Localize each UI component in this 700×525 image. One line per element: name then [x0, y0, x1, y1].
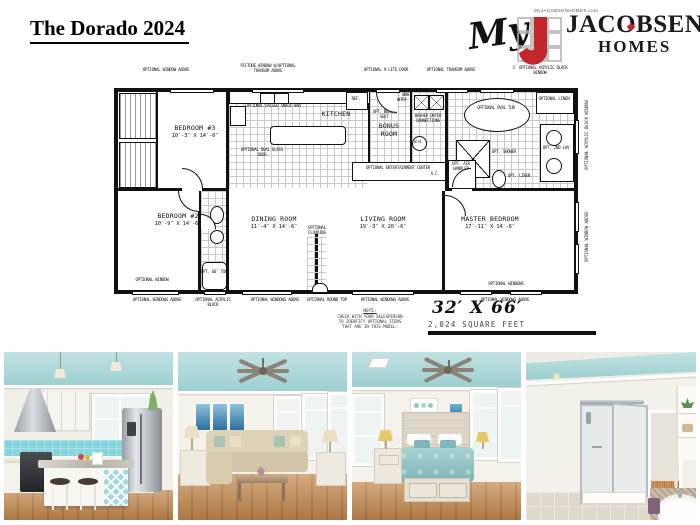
art-shell: [428, 403, 433, 408]
bed3-door-arc: [182, 168, 203, 189]
window-mullion: [331, 407, 347, 409]
duvet: [396, 448, 474, 482]
plan-dimensions: 32′ X 66′: [432, 298, 522, 318]
window-mullion: [305, 409, 327, 411]
bedroom3-dims: 10′-3″ X 14′-6″: [160, 133, 230, 140]
master-windows-label: OPTIONAL WINDOWS: [480, 282, 532, 287]
annotation-acrylic-window: 3′ OPTIONAL ACRYLIC BLOCK WINDOW: [508, 66, 572, 76]
round-top-window: [312, 283, 328, 292]
basket-on-shelf: [682, 424, 693, 432]
master-dims: 17′-11″ X 14′-6″: [442, 224, 538, 231]
art-shell: [414, 403, 419, 408]
bottom-label-1: OPTIONAL WINDOWS ABOVE: [126, 298, 188, 303]
tub-faucet: [678, 490, 682, 498]
ocean-art-panel: [196, 404, 210, 430]
crown-molding: [4, 385, 173, 388]
logo-homes-text: HOMES: [566, 38, 700, 55]
window-transom: [436, 89, 468, 93]
oval-tub: [464, 98, 530, 132]
island-granite-top: [38, 460, 134, 468]
throw-pillow: [274, 436, 285, 447]
toilet-master: [492, 170, 506, 188]
jacobsen-homes-logo: MyJACOBSENHOMES.com My JACOBSEN HOMES: [468, 8, 688, 66]
plant-on-shelf: [681, 398, 694, 408]
stool-leg: [80, 484, 82, 510]
range: [230, 106, 246, 126]
ceiling: [4, 352, 173, 386]
window-master-1: [460, 291, 492, 295]
throw-pillow: [214, 436, 225, 447]
window-mullion: [277, 411, 299, 413]
refrigerator: [122, 408, 162, 492]
master-door-arc: [445, 195, 466, 216]
ocean-art-panel: [213, 404, 227, 430]
coffee-table-top: [236, 476, 288, 483]
stool-leg: [52, 484, 54, 510]
annotation-9lite-door: OPTIONAL 9-LITE DOOR: [360, 68, 412, 73]
window-bed2: [132, 291, 179, 295]
throw-pillow: [230, 436, 241, 447]
nightstand: [374, 448, 402, 484]
fridge-dispenser: [127, 422, 136, 436]
bottom-label-2: OPTIONAL ACRYLIC BLOCK: [190, 298, 236, 308]
door-9lite-gap: [376, 89, 400, 93]
window-mullion: [355, 411, 381, 413]
window-mullion: [355, 435, 381, 437]
annotation-top-window: OPTIONAL WINDOW ABOVE: [136, 68, 196, 73]
bottom-label-5: OPTIONAL WINDOWS ABOVE: [354, 298, 416, 303]
window-dining: [242, 291, 292, 295]
bed3-wardrobe: [119, 93, 157, 139]
window-picture: [252, 89, 304, 93]
note-line: THAT ARE IN THIS MODEL.: [305, 324, 435, 329]
lav-label: OPT. 2ND LAV: [540, 146, 572, 151]
lav-1: [546, 130, 562, 146]
coffee-table-leg: [282, 483, 285, 501]
window-acrylic-bath1: [204, 291, 226, 295]
bed2-window-label: OPTIONAL WINDOW: [130, 278, 174, 283]
bed2-door-arc: [178, 191, 199, 212]
window-master-2: [510, 291, 542, 295]
window-mullion: [501, 405, 521, 407]
dryer-box: [429, 95, 444, 110]
annotation-picture-window: PICTURE WINDOW W/OPTIONAL TRANSOM ABOVE: [238, 64, 298, 74]
right-label-acrylic: OPTIONAL ACRYLIC BLOCK WINDOW: [584, 100, 589, 170]
soaking-tub: [658, 494, 696, 520]
table-lamp-body: [329, 442, 331, 452]
bed3-wardrobe-2: [119, 142, 157, 188]
ac-label: A.C.: [426, 172, 444, 177]
lamp-body: [385, 441, 387, 449]
living-label: LIVING ROOM: [342, 215, 424, 223]
refrigerator-label: REF.: [346, 97, 366, 102]
right-label-window: OPTIONAL WINDOW ABOVE: [584, 211, 589, 262]
throw-pillow: [290, 436, 301, 447]
shower-glass-panel: [580, 404, 614, 504]
kitchen-island: [270, 126, 346, 145]
stool-leg: [94, 484, 96, 510]
fruit-yellow: [85, 455, 90, 460]
entertainment-label: OPTIONAL ENTERTAINMENT CENTER: [354, 166, 442, 171]
island-sign-card: [92, 452, 103, 465]
bonus-room-label: BONUS ROOM: [370, 122, 408, 138]
plan-note: NOTE: CHECK WITH YOUR SALESPERSON TO IDE…: [305, 309, 435, 330]
page-title: The Dorado 2024: [30, 16, 189, 44]
shower-head: [586, 412, 591, 424]
dining-label: DINING ROOM: [236, 215, 312, 223]
lav-bath1: [210, 230, 224, 244]
window-bed3: [170, 89, 214, 93]
photo-kitchen: [4, 352, 173, 520]
shower-handle: [592, 446, 602, 448]
bottom-label-4: OPTIONAL ROUND TOP: [304, 298, 350, 303]
optional-flooring-strip: [307, 237, 326, 290]
shelf: [678, 410, 696, 413]
purple-towel: [648, 498, 660, 514]
opt-linen-label: OPT. LINEN: [506, 174, 532, 179]
ocean-art-panel: [230, 404, 244, 430]
window-master-right-1: [575, 202, 579, 232]
drawer: [439, 483, 467, 498]
pendant-cord: [60, 352, 61, 369]
wall-left: [114, 88, 118, 294]
pendant-cord: [116, 352, 117, 362]
washer-box: [414, 95, 429, 110]
flooring-label: OPTIONAL FLOORING: [300, 226, 334, 236]
table-lamp-body: [191, 438, 193, 450]
window: [498, 388, 521, 462]
coffee-table-leg: [238, 483, 241, 501]
shower-curb: [582, 492, 646, 504]
window-living: [352, 291, 414, 295]
oval-tub-label: OPTIONAL OVAL TUB: [476, 106, 516, 111]
tub-60-label: OPT. 60″ TUB: [200, 270, 228, 275]
snack-bar-label: OPTIONAL RAISED SNACK BAR: [242, 104, 304, 109]
window-mullion: [473, 407, 497, 409]
recessed-light: [554, 374, 559, 379]
washer-dryer-label: WASHER DRYER CONNECTIONS: [412, 114, 444, 124]
living-dims: 19′-3″ X 20′-6″: [342, 224, 424, 231]
floor-plan: OPTIONAL WINDOW ABOVE PICTURE WINDOW W/O…: [112, 62, 598, 314]
water-heater-label: W.H.: [412, 140, 425, 145]
fruit-red: [78, 454, 84, 460]
photo-living-room: [178, 352, 347, 520]
shower-label: OPT. SHOWER: [490, 150, 518, 155]
bottom-label-3: OPTIONAL WINDOWS ABOVE: [244, 298, 306, 303]
size-underline-rule: [428, 331, 596, 335]
plan-square-feet: 2,024 SQUARE FEET: [428, 320, 525, 329]
ceiling-fan-hub: [259, 367, 267, 375]
art-shell: [421, 403, 426, 408]
built-in-shelves: [676, 386, 696, 460]
window-mullion: [119, 397, 121, 443]
bed-footboard-drawers: [404, 478, 470, 502]
drawer: [409, 483, 437, 498]
linen-label: OPTIONAL LINEN: [537, 97, 571, 102]
fridge-handle: [140, 414, 142, 484]
nightstand-drawer: [379, 455, 399, 465]
kitchen-label: KITCHEN: [308, 110, 364, 118]
wall-bed3-bottom-a: [118, 188, 182, 191]
glass-door-label: OPTIONAL DUAL GLASS DOOR: [240, 148, 284, 158]
island-lattice-panel: [104, 470, 128, 506]
sofa-chaise: [206, 452, 232, 484]
end-table: [316, 452, 346, 486]
master-label: MASTER BEDROOM: [442, 215, 538, 223]
annotation-transom: OPTIONAL TRANSOM ABOVE: [424, 68, 478, 73]
shelf: [678, 434, 696, 437]
window: [470, 390, 500, 460]
ceiling-fan-hub: [444, 366, 452, 374]
wall-bottom: [114, 290, 578, 294]
lamp-body: [482, 442, 484, 449]
bedroom3-label: BEDROOM #3: [160, 124, 230, 132]
shower-glass-door: [612, 403, 648, 498]
window-acrylic-tub: [480, 89, 514, 93]
photo-master-bathroom: [526, 352, 696, 520]
tub-60: [202, 262, 227, 290]
photo-master-bedroom: [352, 352, 521, 520]
logo-grid-j-icon: [516, 15, 562, 65]
window-bath-right: [575, 120, 579, 154]
stool-leg: [66, 484, 68, 510]
logo-wordmark: JACOBSEN HOMES: [566, 12, 700, 55]
wall-bath-bottom-b: [472, 188, 574, 191]
window-master-right-2: [575, 244, 579, 274]
lav-2: [546, 158, 562, 174]
